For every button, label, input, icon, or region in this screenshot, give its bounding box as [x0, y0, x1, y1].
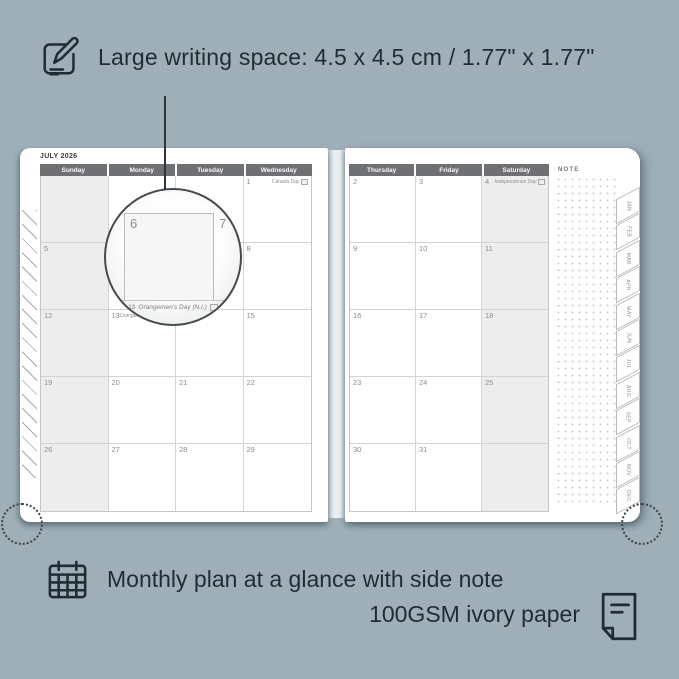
- calendar-cell: 26: [41, 444, 109, 511]
- calendar-cell: 24: [416, 377, 482, 444]
- calendar-cell: 8: [244, 243, 312, 310]
- calendar-cell-holiday: 1Canada Day: [244, 176, 312, 243]
- weekday-thursday: Thursday: [349, 164, 416, 176]
- calendar-cell: 18: [482, 310, 548, 377]
- bottom-annotation-text-1: Monthly plan at a glance with side note: [107, 566, 503, 593]
- magnified-holiday-label: 13 Orangemen's Day (N.I.): [106, 304, 240, 311]
- holiday-flag-icon: [301, 179, 308, 186]
- page-edge-hatching: [22, 210, 37, 478]
- calendar-cell: 12: [41, 310, 109, 377]
- holiday-flag-icon: [210, 304, 218, 311]
- planner-right-page: Thursday Friday Saturday 2 3 4Independen…: [345, 148, 640, 522]
- calendar-cells-right: 2 3 4Independence Day 9 10 11 16 17 18 2…: [349, 176, 549, 513]
- month-title: JULY 2026: [40, 153, 77, 160]
- paper-icon: [594, 590, 642, 648]
- weekday-header-row: Sunday Monday Tuesday Wednesday: [40, 164, 312, 176]
- calendar-grid-icon: [44, 556, 91, 603]
- weekday-tuesday: Tuesday: [177, 164, 246, 176]
- calendar-cell: 19: [41, 377, 109, 444]
- calendar-cell: 29: [244, 444, 312, 511]
- calendar-cell: [482, 444, 548, 511]
- bottom-annotation-text-2: 100GSM ivory paper: [250, 601, 580, 628]
- calendar-grid-right: Thursday Friday Saturday 2 3 4Independen…: [349, 164, 549, 512]
- weekday-wednesday: Wednesday: [246, 164, 313, 176]
- weekday-sunday: Sunday: [40, 164, 109, 176]
- calendar-cell: 10: [416, 243, 482, 310]
- top-annotation: Large writing space: 4.5 x 4.5 cm / 1.77…: [38, 32, 595, 82]
- weekday-monday: Monday: [109, 164, 178, 176]
- calendar-cell: 16: [350, 310, 416, 377]
- note-label: NOTE: [558, 167, 579, 173]
- calendar-cell: 25: [482, 377, 548, 444]
- callout-line: [164, 96, 166, 190]
- holiday-label: Canada Day: [272, 179, 308, 186]
- calendar-cell: 9: [350, 243, 416, 310]
- holiday-label: Independence Day: [495, 179, 545, 186]
- pencil-note-icon: [38, 32, 84, 82]
- weekday-friday: Friday: [416, 164, 483, 176]
- top-annotation-text: Large writing space: 4.5 x 4.5 cm / 1.77…: [98, 44, 595, 71]
- calendar-cell: 11: [482, 243, 548, 310]
- calendar-cell: 17: [416, 310, 482, 377]
- note-dot-grid: [555, 176, 618, 506]
- perforation-dots: [1, 503, 43, 545]
- calendar-cell: [41, 176, 109, 243]
- calendar-cell: 31: [416, 444, 482, 511]
- weekday-saturday: Saturday: [484, 164, 549, 176]
- bottom-annotation-1: Monthly plan at a glance with side note: [44, 556, 503, 603]
- calendar-cell: 27: [109, 444, 177, 511]
- calendar-cell: 22: [244, 377, 312, 444]
- calendar-cell: 5: [41, 243, 109, 310]
- calendar-cell: 30: [350, 444, 416, 511]
- calendar-cell-holiday: 4Independence Day: [482, 176, 548, 243]
- magnifier-circle: 6 7 13 Orangemen's Day (N.I.): [104, 188, 242, 326]
- page-spine-gap: [326, 150, 347, 518]
- calendar-cell: 23: [350, 377, 416, 444]
- holiday-flag-icon: [538, 179, 545, 186]
- calendar-cell: 20: [109, 377, 177, 444]
- magnified-grid-line: [106, 300, 240, 301]
- magnified-adjacent-day-number: 7: [219, 216, 226, 231]
- weekday-header-row: Thursday Friday Saturday: [349, 164, 549, 176]
- calendar-cell: 3: [416, 176, 482, 243]
- perforation-dots: [621, 503, 663, 545]
- magnified-day-number: 6: [130, 216, 137, 231]
- magnified-writing-cell: [124, 213, 214, 301]
- calendar-cell: 28: [176, 444, 244, 511]
- calendar-cell: 21: [176, 377, 244, 444]
- calendar-cell: 15: [244, 310, 312, 377]
- month-tab-strip: JAN FEB MAR APR MAY JUN JUL AUG SEP OCT …: [616, 193, 640, 523]
- calendar-cell: 2: [350, 176, 416, 243]
